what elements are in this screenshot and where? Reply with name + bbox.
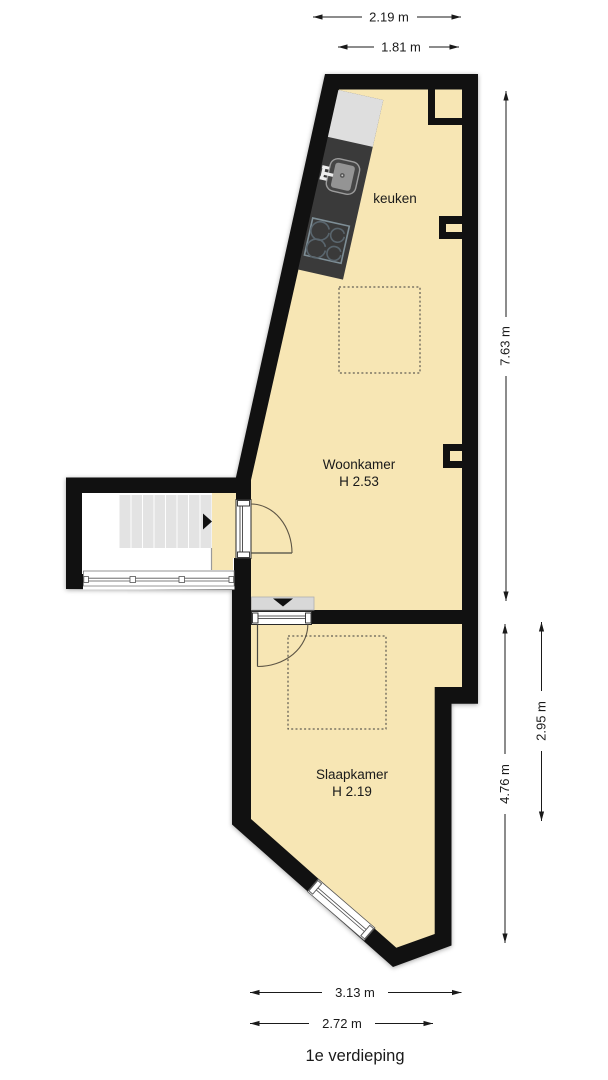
svg-text:Woonkamer: Woonkamer (323, 457, 396, 472)
svg-text:keuken: keuken (373, 191, 417, 206)
svg-text:1.81 m: 1.81 m (381, 40, 421, 55)
svg-text:Slaapkamer: Slaapkamer (316, 767, 389, 782)
svg-text:7.63 m: 7.63 m (498, 326, 513, 366)
svg-text:2.72 m: 2.72 m (322, 1016, 362, 1031)
svg-text:2.95 m: 2.95 m (534, 701, 549, 741)
svg-text:2.19 m: 2.19 m (369, 10, 409, 25)
svg-text:1e verdieping: 1e verdieping (305, 1047, 404, 1065)
svg-text:4.76 m: 4.76 m (497, 764, 512, 804)
svg-text:3.13 m: 3.13 m (335, 985, 375, 1000)
svg-text:H 2.19: H 2.19 (332, 784, 372, 799)
svg-text:H 2.53: H 2.53 (339, 474, 379, 489)
